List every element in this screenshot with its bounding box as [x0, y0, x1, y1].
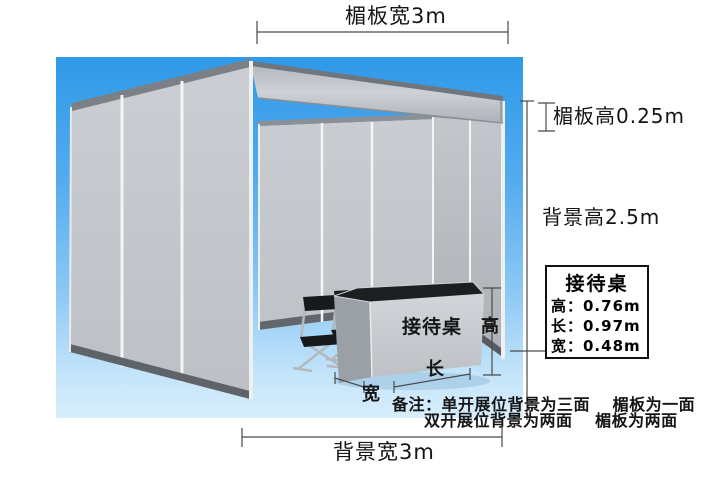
reception-desk-info-box: 接待桌 高：0.76m 长：0.97m 宽：0.48m [545, 265, 649, 359]
background-width-label: 背景宽3m [333, 441, 435, 464]
left-wall [70, 59, 251, 399]
desk-width-char: 宽 [362, 385, 380, 405]
desk-front-label: 接待桌 [402, 317, 462, 338]
top-width-label: 楣板宽3m [345, 5, 447, 28]
desk-height-char: 高 [481, 317, 499, 337]
background-height-label: 背景高2.5m [542, 206, 660, 228]
info-box-row-length: 长：0.97m [547, 316, 647, 336]
booth-diagram: 楣板宽3m 楣板高0.25m 背景高2.5m 接待桌 高：0.76m 长：0.9… [0, 0, 712, 494]
info-box-title: 接待桌 [547, 269, 647, 296]
note-line-2: 双开展位背景为两面 楣板为两面 [424, 412, 678, 430]
lintel-height-label: 楣板高0.25m [553, 105, 685, 127]
info-box-row-height: 高：0.76m [547, 296, 647, 316]
info-box-row-width: 宽：0.48m [547, 336, 647, 356]
desk-length-char: 长 [426, 360, 444, 380]
